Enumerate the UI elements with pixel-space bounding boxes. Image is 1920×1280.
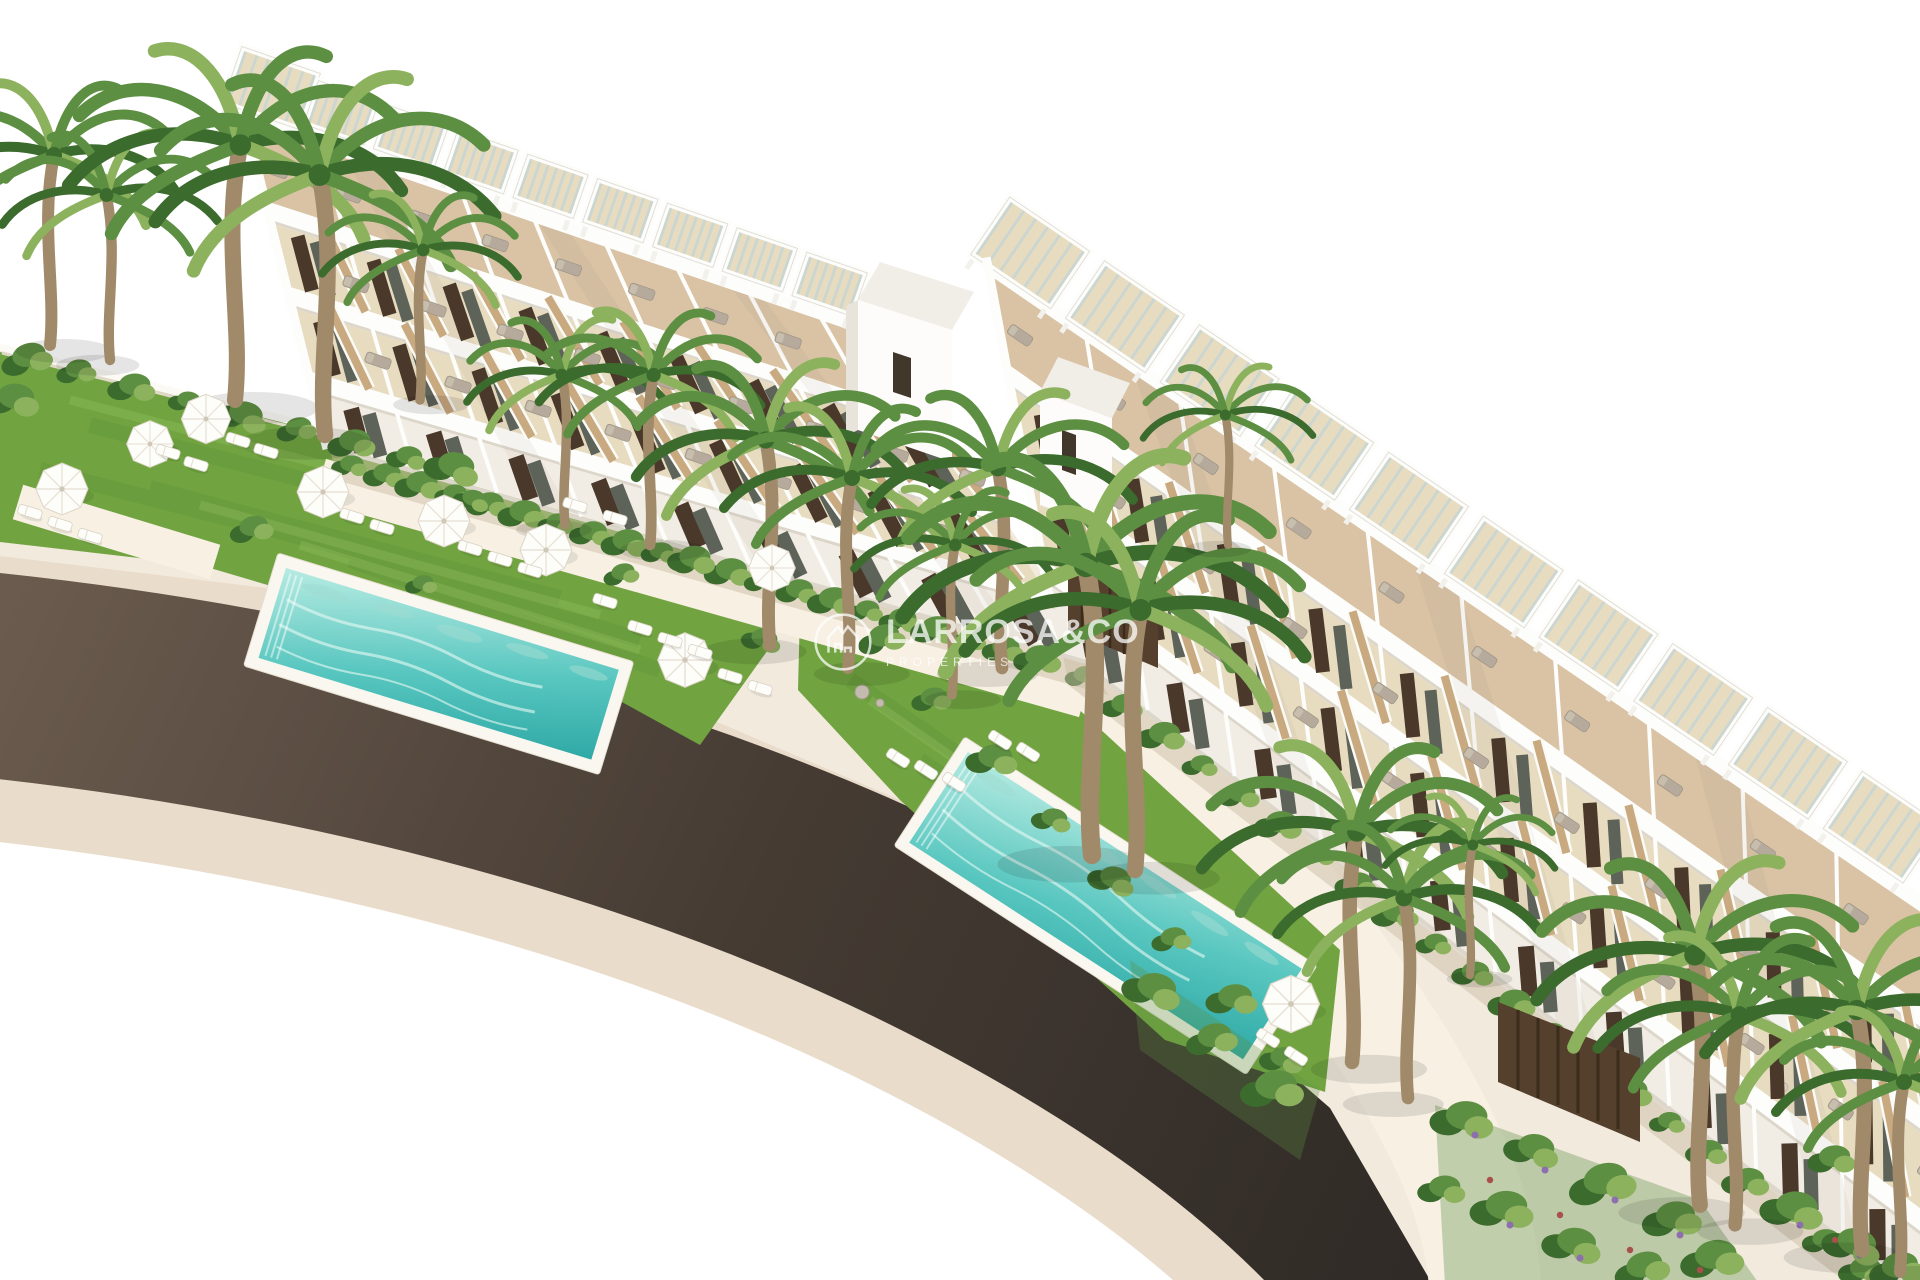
flowers-purple <box>1472 1132 1479 1139</box>
garden-stool <box>876 699 884 707</box>
ground-door <box>1262 749 1269 798</box>
garden-table <box>855 685 869 699</box>
terrace-door <box>1498 738 1504 802</box>
terrace-window <box>1522 755 1527 819</box>
render-scene <box>0 0 1920 1280</box>
terrace-door <box>1407 673 1414 737</box>
terrace-door <box>1315 609 1323 673</box>
flowers-purple <box>1542 1167 1549 1174</box>
flowers-purple <box>1577 1255 1584 1262</box>
flowers-purple <box>1677 1232 1684 1239</box>
flowers-red <box>1697 1267 1703 1273</box>
flowers-purple <box>1507 1222 1514 1229</box>
property-render: LARROSA&CO PROPERTIES <box>0 0 1920 1280</box>
flowers-red <box>1557 1212 1563 1218</box>
ground-door <box>1526 946 1530 996</box>
flowers-purple <box>1612 1197 1619 1204</box>
terrace-window <box>1614 820 1618 885</box>
flowers-red <box>1487 1177 1493 1183</box>
flowers-red <box>1627 1247 1633 1253</box>
ground-door <box>1789 1143 1790 1194</box>
ground-window <box>1195 699 1203 748</box>
terrace-door <box>1507 838 1512 902</box>
ground-window <box>1723 1093 1725 1144</box>
tower-window <box>1062 430 1076 475</box>
terrace-window <box>1339 626 1347 690</box>
terrace-door <box>1590 803 1594 867</box>
tower-window <box>893 352 911 398</box>
flowers-red <box>1832 1237 1838 1243</box>
